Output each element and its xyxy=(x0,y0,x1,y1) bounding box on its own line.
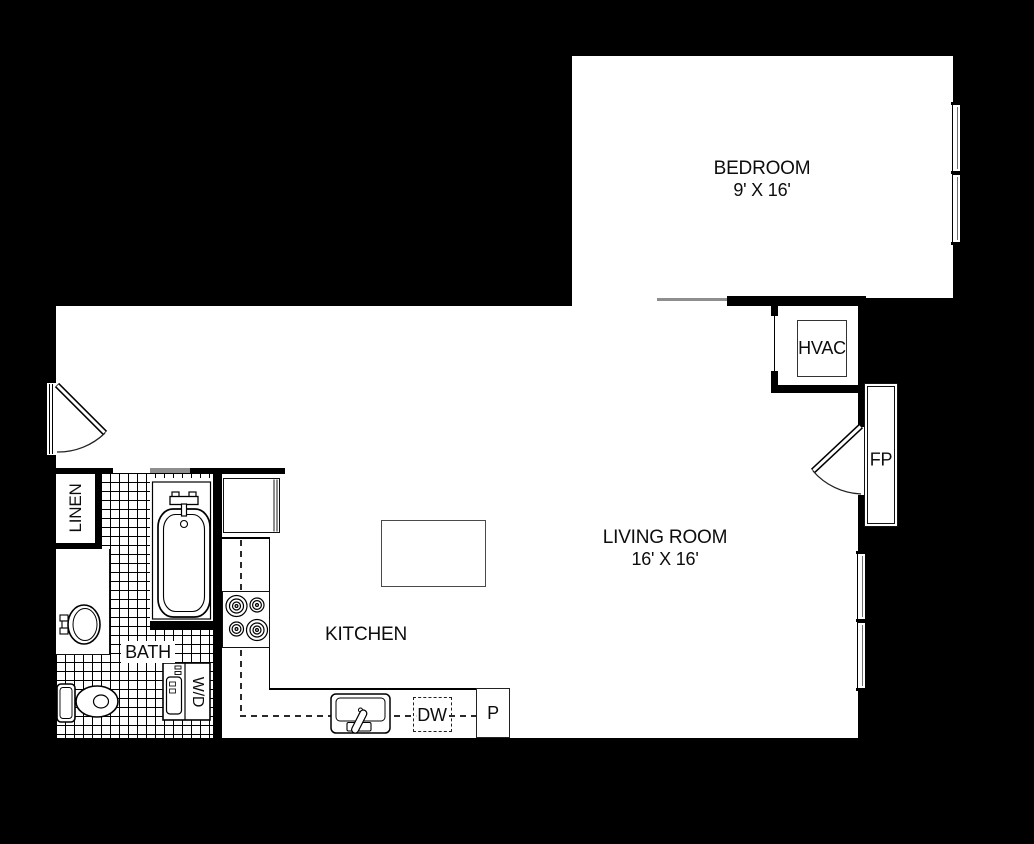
floor-plan: HVAC BEDROOM 9' X 16' LIVING ROOM 16' X … xyxy=(0,0,1034,844)
bedroom-dims: 9' X 16' xyxy=(733,180,790,201)
window-cap xyxy=(951,242,962,245)
washer-dryer-label: W/D xyxy=(188,677,206,708)
wall-tub-bottom xyxy=(150,621,222,630)
living-room-dims: 16' X 16' xyxy=(631,549,698,570)
wall-bath-top-left xyxy=(47,468,113,474)
wall-linen-right xyxy=(95,468,102,549)
dishwasher-label: DW xyxy=(416,705,448,726)
window-cap xyxy=(856,619,867,622)
wall-hvac-jamb-top xyxy=(771,302,778,316)
wall-left-upper xyxy=(47,306,56,383)
counter-edge-horizontal xyxy=(269,688,477,690)
bedroom-window-sash-top xyxy=(952,104,961,172)
hvac-door-line xyxy=(774,316,776,371)
wall-bedroom-bottom xyxy=(727,296,866,306)
wall-bath-kitchen xyxy=(213,468,222,738)
entry-door-gap xyxy=(47,383,56,455)
living-room-label: LIVING ROOM xyxy=(603,527,727,549)
living-window-sash-bottom xyxy=(857,622,866,689)
bath-label: BATH xyxy=(125,642,171,663)
wall-left-lower xyxy=(47,455,56,750)
wall-kitchen-top xyxy=(190,468,285,474)
bedroom-label: BEDROOM xyxy=(714,158,811,180)
wall-bottom xyxy=(47,738,866,750)
vanity-counter xyxy=(56,549,110,655)
stove xyxy=(222,591,270,648)
hvac-label: HVAC xyxy=(798,338,846,359)
living-window-sash-top xyxy=(857,553,866,620)
window-cap xyxy=(856,551,867,554)
window-cap xyxy=(856,688,867,691)
window-cap xyxy=(951,171,962,174)
window-glass-line xyxy=(862,625,863,686)
linen-label: LINEN xyxy=(66,483,86,532)
window-glass-line xyxy=(957,177,958,240)
window-cap xyxy=(951,102,962,105)
tub-alcove-floor xyxy=(150,478,213,621)
wall-hvac-bottom xyxy=(771,385,866,393)
table xyxy=(381,520,486,587)
window-glass-line xyxy=(862,556,863,617)
kitchen-label: KITCHEN xyxy=(325,624,407,646)
hvac-unit-box: HVAC xyxy=(797,320,847,377)
living-room-window xyxy=(857,553,866,689)
fireplace-label: FP xyxy=(870,450,893,471)
bedroom-window xyxy=(952,104,961,243)
bedroom-opening-header xyxy=(657,298,727,301)
pantry-label: P xyxy=(487,703,499,724)
bath-doorway-header xyxy=(150,468,190,473)
counter-edge-under-fridge xyxy=(219,537,270,539)
window-glass-line xyxy=(957,107,958,169)
bedroom-window-sash-bottom xyxy=(952,174,961,243)
refrigerator xyxy=(223,478,280,533)
bath-label-box: BATH xyxy=(121,641,175,663)
